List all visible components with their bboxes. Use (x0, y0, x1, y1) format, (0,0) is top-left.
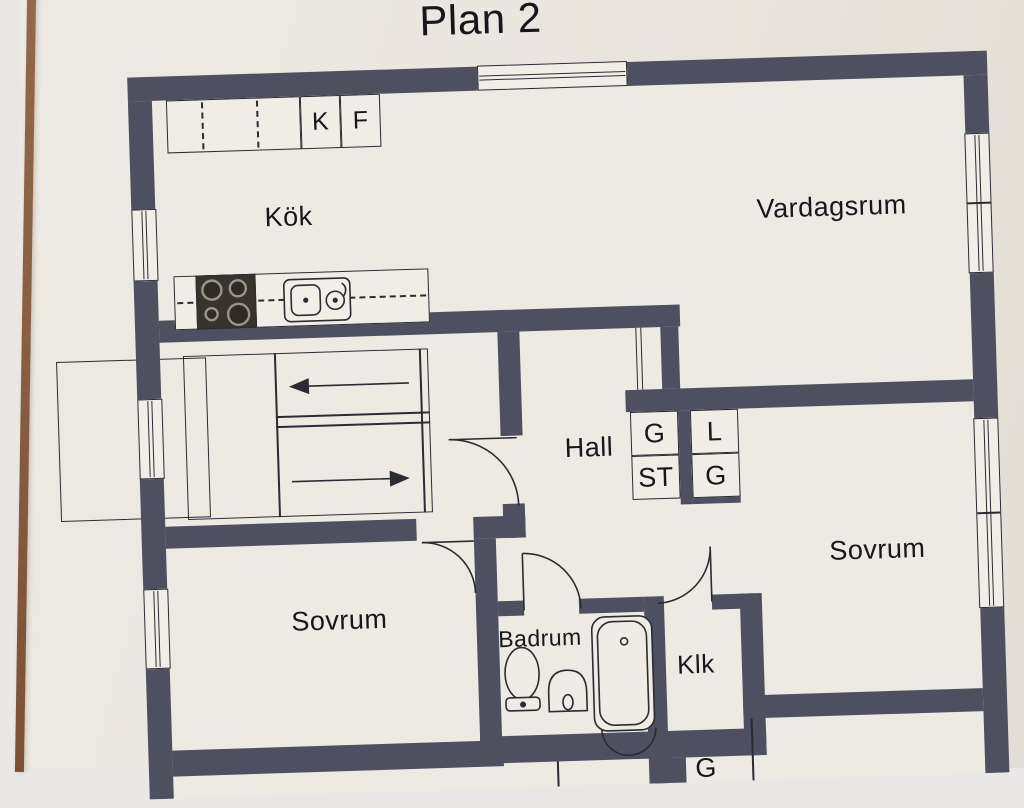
room-label-klk: Klk (665, 647, 726, 681)
wall-left-d (146, 669, 174, 800)
room-label-sovrum-left: Sovrum (259, 602, 420, 639)
wall-hall-upper (497, 331, 522, 436)
room-label-kok: Kök (238, 199, 339, 234)
window-left-balcony (137, 399, 165, 480)
room-label-badrum: Badrum (490, 622, 591, 653)
window-left-kitchen (131, 209, 158, 282)
wall-right-a (963, 75, 989, 134)
closet-g2: G (691, 453, 740, 498)
stove-symbol (195, 274, 257, 330)
window-mullion (141, 211, 148, 279)
wall-badrum-top-b (579, 597, 644, 614)
wall-badrum-top-a (498, 600, 524, 616)
cabinet-frys: F (340, 94, 382, 148)
kitchen-counter-top (166, 96, 302, 153)
cabinet-kyl-label: K (312, 107, 330, 137)
room-label-hall: Hall (539, 430, 640, 465)
wall-left-a (128, 101, 155, 210)
window-mullion (147, 401, 154, 477)
room-label-vardagsrum: Vardagsrum (741, 187, 922, 227)
window-crossbar (967, 202, 990, 205)
stairwell (183, 348, 433, 520)
bottom-wall-piece (652, 757, 687, 783)
window-right-vardagsrum (964, 133, 993, 274)
cabinet-kyl: K (300, 95, 342, 149)
closet-g1-label: G (643, 417, 665, 449)
wall-left-b (134, 281, 162, 400)
window-top (477, 61, 628, 91)
closet-l-label: L (706, 416, 722, 447)
window-mullion (153, 591, 160, 667)
closet-st-label: ST (638, 461, 674, 493)
cabinet-frys-label: F (352, 106, 369, 135)
window-mullion (479, 71, 625, 81)
floor-plan: Plan 2 (127, 33, 1010, 800)
wall-right-b (970, 273, 999, 419)
window-crossbar (977, 511, 1000, 514)
window-left-sovrum (143, 589, 171, 670)
wall-left-c (140, 479, 167, 590)
wall-right-c (980, 607, 1009, 773)
wall-stairs-bottom-b (473, 515, 526, 539)
closet-l: L (690, 409, 739, 454)
room-label-sovrum-right: Sovrum (797, 531, 958, 568)
closet-g2-label: G (705, 460, 727, 492)
wall-vardagsrum-stub (660, 326, 680, 389)
